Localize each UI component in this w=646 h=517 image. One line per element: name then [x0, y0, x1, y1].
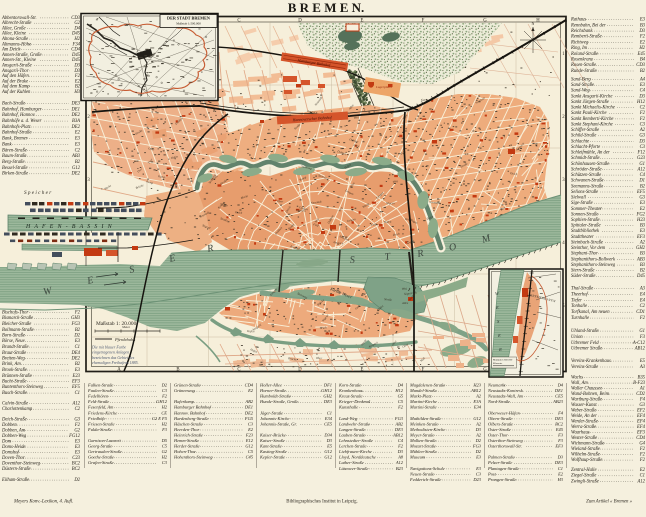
- svg-text:Schröder-Straße: Schröder-Straße: [571, 167, 602, 172]
- svg-text:E3: E3: [74, 137, 81, 142]
- svg-text:F23: F23: [245, 433, 254, 438]
- svg-text:A12: A12: [395, 460, 404, 465]
- svg-text:C3: C3: [248, 421, 254, 426]
- svg-text:C2: C2: [75, 148, 81, 153]
- svg-text:Baum-Straße: Baum-Straße: [2, 154, 27, 159]
- svg-text:D4: D4: [557, 383, 564, 388]
- svg-text:Kepler-Straße: Kepler-Straße: [259, 455, 285, 460]
- svg-text:Pelzer-Straße: Pelzer-Straße: [487, 460, 512, 465]
- svg-text:F3: F3: [639, 335, 646, 340]
- svg-text:E3A: E3A: [472, 399, 481, 404]
- svg-text:G12: G12: [324, 449, 332, 454]
- svg-text:Lehnstedter-Straße: Lehnstedter-Straße: [338, 438, 373, 443]
- svg-text:Vereins-Krankenhaus: Vereins-Krankenhaus: [571, 359, 611, 364]
- svg-text:D5: D5: [161, 438, 168, 443]
- svg-text:Allee, Große: Allee, Große: [1, 26, 26, 31]
- svg-text:G23: G23: [637, 156, 646, 161]
- svg-text:BC2: BC2: [72, 467, 81, 472]
- svg-text:G: G: [483, 367, 487, 372]
- svg-text:D23: D23: [472, 477, 481, 482]
- svg-text:Heinrich-Straße: Heinrich-Straße: [173, 433, 203, 438]
- svg-text:Grünenweg: Grünenweg: [174, 388, 195, 393]
- svg-text:Calvin-Straße: Calvin-Straße: [2, 402, 28, 407]
- svg-text:EF2: EF2: [636, 409, 646, 414]
- svg-text:E3: E3: [639, 229, 646, 234]
- svg-text:DE2: DE2: [244, 410, 254, 415]
- svg-text:C3: C3: [162, 460, 168, 465]
- svg-text:D45: D45: [636, 274, 646, 279]
- svg-text:AB2: AB2: [394, 421, 403, 426]
- svg-text:A3: A3: [639, 287, 646, 292]
- svg-text:E: E: [497, 333, 501, 338]
- svg-text:Stern-Straße: Stern-Straße: [571, 269, 594, 274]
- svg-text:CE5: CE5: [324, 421, 333, 426]
- svg-text:B-F23: B-F23: [633, 381, 646, 386]
- svg-text:Brook-Straße: Brook-Straße: [2, 368, 27, 373]
- svg-text:E: E: [361, 18, 364, 23]
- svg-text:H12: H12: [394, 388, 403, 393]
- svg-text:E2: E2: [639, 468, 646, 473]
- svg-text:E34: E34: [473, 405, 482, 410]
- svg-text:Rathaus: Rathaus: [570, 18, 586, 23]
- svg-text:Mathilden-Straße: Mathilden-Straße: [409, 416, 441, 421]
- svg-text:Sommer-Theater: Sommer-Theater: [571, 207, 602, 212]
- svg-text:Hafen: Hafen: [383, 220, 392, 224]
- svg-text:Wachs: Wachs: [571, 376, 583, 381]
- svg-text:Breiten-Weg: Breiten-Weg: [2, 357, 26, 362]
- svg-text:Hardenberg-Straße: Hardenberg-Straße: [173, 416, 208, 421]
- svg-text:Brünnen-Straße: Brünnen-Straße: [2, 374, 32, 379]
- svg-text:D45: D45: [71, 32, 81, 37]
- svg-text:CD3: CD3: [71, 16, 80, 21]
- svg-text:Garnison-Lazarett: Garnison-Lazarett: [88, 438, 122, 443]
- svg-text:Martini-Kirche: Martini-Kirche: [409, 399, 437, 404]
- svg-text:A2: A2: [475, 421, 482, 426]
- svg-text:A-C12: A-C12: [632, 341, 646, 346]
- svg-text:EF5: EF5: [71, 385, 81, 390]
- svg-text:Korn-Straße: Korn-Straße: [338, 383, 361, 388]
- svg-text:B2: B2: [75, 85, 81, 90]
- svg-text:F2: F2: [397, 405, 404, 410]
- svg-text:Neumarkt: Neumarkt: [487, 383, 506, 388]
- svg-text:Remberti-Straße: Remberti-Straße: [570, 35, 602, 40]
- svg-text:Tiefer: Tiefer: [571, 298, 582, 303]
- svg-text:H3: H3: [557, 477, 564, 482]
- svg-text:D3: D3: [638, 94, 645, 99]
- svg-text:Jäger-Straße: Jäger-Straße: [260, 410, 283, 415]
- svg-text:A2: A2: [639, 128, 646, 133]
- svg-text:ehemaligen Freihafens 1885.: ehemaligen Freihafens 1885.: [92, 360, 139, 365]
- svg-text:FG3: FG3: [394, 416, 404, 421]
- svg-text:Bollmann-Straße: Bollmann-Straße: [2, 328, 34, 333]
- svg-text:Ring, Im: Ring, Im: [570, 46, 588, 51]
- svg-text:B3: B3: [640, 252, 646, 257]
- svg-text:E3: E3: [74, 142, 81, 147]
- svg-text:EF3: EF3: [636, 431, 646, 436]
- svg-text:Braut-Straße: Braut-Straße: [2, 351, 26, 356]
- svg-text:AB23: AB23: [552, 399, 564, 404]
- svg-text:Sankt Michaelis-Kirche: Sankt Michaelis-Kirche: [571, 106, 615, 111]
- svg-text:A2: A2: [639, 241, 646, 246]
- svg-text:Albrecht-Straße: Albrecht-Straße: [1, 21, 31, 26]
- svg-text:G: G: [483, 18, 487, 23]
- svg-text:Pferdebahn: Pferdebahn: [114, 337, 136, 342]
- svg-text:FG12: FG12: [68, 434, 81, 439]
- svg-text:D3: D3: [475, 427, 482, 432]
- svg-text:F12: F12: [637, 151, 646, 156]
- svg-text:Stadtbibliothek: Stadtbibliothek: [571, 229, 600, 234]
- svg-text:G1: G1: [639, 329, 645, 334]
- svg-text:Am Deich: Am Deich: [1, 48, 21, 53]
- svg-text:E3: E3: [74, 445, 81, 450]
- svg-text:G1: G1: [639, 162, 645, 167]
- svg-text:G12: G12: [473, 416, 481, 421]
- svg-text:DE3: DE3: [323, 399, 333, 404]
- svg-text:D3: D3: [326, 438, 333, 443]
- svg-text:Wasser-Kunst: Wasser-Kunst: [571, 403, 597, 408]
- svg-text:Haferkamp: Haferkamp: [173, 399, 195, 404]
- svg-text:A12: A12: [637, 479, 646, 484]
- svg-text:E5: E5: [639, 359, 646, 364]
- svg-text:Birken-Straße: Birken-Straße: [2, 172, 28, 177]
- svg-text:Selions-Straße: Selions-Straße: [571, 190, 598, 195]
- svg-text:Auf der Kuhlen: Auf der Kuhlen: [1, 90, 31, 95]
- svg-text:A8: A8: [397, 455, 404, 460]
- svg-text:G2: G2: [74, 429, 80, 434]
- svg-text:Wolfhaup-Straße: Wolfhaup-Straße: [571, 458, 602, 463]
- svg-text:H23: H23: [472, 383, 481, 388]
- svg-text:Lerchen-Straße: Lerchen-Straße: [338, 444, 366, 449]
- svg-text:Kamp: Kamp: [420, 97, 429, 102]
- svg-text:N: N: [532, 21, 535, 26]
- svg-text:Schlachte: Schlachte: [571, 139, 589, 144]
- svg-text:Turnhalle: Turnhalle: [571, 316, 589, 321]
- svg-text:Düstern-Straße: Düstern-Straße: [1, 467, 31, 472]
- svg-text:A12: A12: [72, 402, 81, 407]
- svg-text:CE: CE: [161, 410, 167, 415]
- svg-text:E45: E45: [637, 52, 646, 57]
- svg-text:F34: F34: [72, 42, 81, 47]
- svg-text:Markt-Platz: Markt-Platz: [409, 394, 432, 399]
- svg-text:Schiffer-Straße: Schiffer-Straße: [571, 128, 599, 133]
- svg-text:Oster-Straße: Oster-Straße: [488, 427, 511, 432]
- svg-text:BC2: BC2: [555, 421, 564, 426]
- svg-text:Horner-Straße: Horner-Straße: [259, 388, 286, 393]
- svg-text:Theerhof: Theerhof: [571, 292, 588, 297]
- svg-text:Landwehr-Straße: Landwehr-Straße: [338, 421, 370, 426]
- svg-text:Sand-Straße: Sand-Straße: [571, 83, 594, 88]
- svg-text:Oberweser-Häfen: Oberweser-Häfen: [488, 410, 520, 415]
- svg-text:AB3: AB3: [636, 257, 646, 262]
- svg-text:B3: B3: [640, 224, 646, 229]
- svg-text:Maßstab 1: 20.000: Maßstab 1: 20.000: [96, 320, 137, 327]
- svg-text:FG2: FG2: [635, 212, 645, 217]
- svg-text:Magdalenen-Straße: Magdalenen-Straße: [409, 383, 445, 388]
- svg-text:Sankt Ansgarii-Kirche: Sankt Ansgarii-Kirche: [571, 94, 612, 99]
- svg-text:Rennbahn, Bei der: Rennbahn, Bei der: [570, 23, 606, 28]
- svg-text:Stadttheater: Stadttheater: [571, 235, 594, 240]
- svg-text:Krankenhaus: Krankenhaus: [338, 388, 363, 393]
- svg-text:Bessel-Straße: Bessel-Straße: [2, 166, 28, 171]
- svg-text:Rosenkranz: Rosenkranz: [570, 58, 593, 63]
- svg-text:Doms-Heide: Doms-Heide: [1, 445, 25, 450]
- svg-text:Lützower-Straße: Lützower-Straße: [338, 466, 369, 471]
- svg-text:Waller Chaussee: Waller Chaussee: [571, 387, 602, 392]
- svg-text:Tonhalle: Tonhalle: [571, 304, 587, 309]
- svg-text:EF3: EF3: [554, 444, 563, 449]
- svg-text:Meyer-Straße: Meyer-Straße: [409, 433, 434, 438]
- svg-text:AB12: AB12: [470, 388, 482, 393]
- svg-text:DE3: DE3: [70, 102, 80, 107]
- svg-text:D3: D3: [73, 64, 80, 69]
- svg-text:G12: G12: [324, 455, 332, 460]
- svg-text:F2: F2: [639, 458, 646, 463]
- svg-text:Sankt Pauli-Kirche: Sankt Pauli-Kirche: [571, 111, 607, 116]
- svg-text:Dobben-Weg: Dobben-Weg: [1, 434, 27, 439]
- svg-text:FG3: FG3: [472, 444, 482, 449]
- svg-text:Methodisten-Kirche: Methodisten-Kirche: [409, 427, 445, 432]
- svg-text:Sankt Remberti-Kirche: Sankt Remberti-Kirche: [571, 117, 613, 122]
- svg-text:A1: A1: [639, 387, 645, 392]
- svg-text:Oster-Thor: Oster-Thor: [488, 433, 508, 438]
- svg-text:G3: G3: [74, 418, 80, 423]
- svg-text:Martini-Straße: Martini-Straße: [409, 405, 437, 410]
- svg-text:Plantagen-Straße: Plantagen-Straße: [487, 466, 519, 471]
- svg-text:E2: E2: [74, 131, 81, 136]
- svg-text:F2: F2: [74, 423, 81, 428]
- svg-text:H2: H2: [161, 405, 168, 410]
- svg-text:Kreuz-Straße: Kreuz-Straße: [338, 394, 363, 399]
- svg-text:Dobben, Am: Dobben, Am: [1, 429, 26, 434]
- svg-text:G3: G3: [639, 196, 645, 201]
- svg-text:E2: E2: [639, 207, 646, 212]
- svg-text:Bahnhof, Hamburger: Bahnhof, Hamburger: [2, 107, 42, 112]
- svg-text:Post: Post: [487, 471, 497, 476]
- svg-text:E3: E3: [639, 18, 646, 23]
- svg-text:Wieland-Straße: Wieland-Straße: [571, 447, 600, 452]
- svg-text:E5: E5: [326, 444, 333, 449]
- svg-text:E3: E3: [74, 368, 81, 373]
- svg-text:H12: H12: [636, 100, 646, 105]
- svg-text:Kaiser-Brücke: Kaiser-Brücke: [259, 433, 286, 438]
- svg-text:Brandt-Straße: Brandt-Straße: [2, 345, 29, 350]
- svg-text:Torfkanal, Am neuen: Torfkanal, Am neuen: [571, 310, 610, 315]
- svg-text:Schleifmühle, An der: Schleifmühle, An der: [571, 151, 610, 156]
- svg-text:B R E M E N.: B R E M E N.: [288, 0, 365, 15]
- svg-text:Grünen-Straße: Grünen-Straße: [174, 383, 201, 388]
- svg-text:Bismarck-Straße: Bismarck-Straße: [2, 316, 33, 321]
- svg-text:Sophien-Straße: Sophien-Straße: [571, 218, 600, 223]
- svg-text:Kunsthalle: Kunsthalle: [338, 405, 358, 410]
- svg-text:Rosen-Straße: Rosen-Straße: [570, 63, 596, 68]
- svg-text:H2: H2: [638, 46, 645, 51]
- svg-text:E23: E23: [72, 374, 81, 379]
- svg-text:Meyers Konv.-Lexikon, 4. Aufl.: Meyers Konv.-Lexikon, 4. Aufl.: [13, 500, 73, 505]
- svg-text:Krieger-Denkmal: Krieger-Denkmal: [338, 399, 371, 404]
- svg-text:Land-Weg: Land-Weg: [338, 416, 358, 421]
- svg-text:Bank: Bank: [2, 142, 12, 147]
- svg-text:Kant-Straße: Kant-Straße: [259, 444, 282, 449]
- svg-text:D4: D4: [397, 383, 404, 388]
- svg-text:Häschen-Straße: Häschen-Straße: [173, 421, 203, 426]
- svg-text:Wand-Bohnen, Beim: Wand-Bohnen, Beim: [571, 392, 610, 397]
- svg-text:EF3: EF3: [71, 380, 81, 385]
- svg-text:D3: D3: [638, 139, 645, 144]
- svg-text:G2: G2: [162, 449, 168, 454]
- svg-text:Navigations-Schule: Navigations-Schule: [409, 466, 445, 471]
- svg-text:E2: E2: [247, 427, 254, 432]
- svg-text:B2: B2: [75, 160, 81, 165]
- svg-text:E12: E12: [245, 438, 254, 443]
- svg-text:Schlacht-Pforte: Schlacht-Pforte: [571, 145, 600, 150]
- svg-text:D3: D3: [557, 455, 564, 460]
- svg-text:Olbers-Straße: Olbers-Straße: [488, 421, 513, 426]
- svg-text:Meinken-Straße: Meinken-Straße: [409, 421, 438, 426]
- svg-text:Altona-Straße: Altona-Straße: [1, 37, 28, 42]
- svg-text:Sand-Weg: Sand-Weg: [571, 89, 590, 94]
- svg-text:Steinbach-Straße: Steinbach-Straße: [571, 241, 603, 246]
- svg-text:Feld-Straße: Feld-Straße: [87, 399, 109, 404]
- svg-text:Born-Straße: Born-Straße: [2, 334, 25, 339]
- svg-text:Doventhor-Steinweg: Doventhor-Steinweg: [1, 462, 41, 467]
- svg-text:C23: C23: [72, 456, 80, 461]
- svg-text:G5: G5: [398, 394, 404, 399]
- svg-text:H A F E N - B A S S I N: H A F E N - B A S S I N: [25, 224, 113, 230]
- svg-text:Museum: Museum: [409, 455, 426, 460]
- svg-text:Schützen-Straße: Schützen-Straße: [571, 173, 601, 178]
- svg-text:F2: F2: [74, 311, 81, 316]
- svg-text:G3: G3: [639, 134, 645, 139]
- svg-text:Ober: Ober: [316, 356, 323, 360]
- svg-text:Wartburg-Straße: Wartburg-Straße: [571, 398, 602, 403]
- svg-text:Falken-Straße: Falken-Straße: [87, 383, 113, 388]
- svg-text:Heerden-Thor: Heerden-Thor: [173, 427, 199, 432]
- svg-text:Hannov. Bahnhof: Hannov. Bahnhof: [173, 410, 206, 415]
- svg-text:Mühlen-Straße: Mühlen-Straße: [409, 449, 437, 454]
- svg-text:Holler-Allee: Holler-Allee: [259, 383, 282, 388]
- svg-text:AB3: AB3: [71, 154, 81, 159]
- svg-text:C1: C1: [75, 345, 80, 350]
- svg-text:Neuen-Straße: Neuen-Straße: [409, 471, 434, 476]
- svg-text:G3: G3: [639, 403, 645, 408]
- svg-text:AB2: AB2: [244, 399, 253, 404]
- svg-text:F: F: [422, 18, 425, 23]
- svg-text:Bibliographisches Institut in: Bibliographisches Institut in Leipzig.: [286, 500, 357, 505]
- svg-text:Bach-Straße: Bach-Straße: [2, 102, 25, 107]
- svg-text:GH12: GH12: [321, 388, 333, 393]
- svg-text:C3: C3: [476, 471, 482, 476]
- svg-text:CD3: CD3: [636, 63, 645, 68]
- svg-text:B3: B3: [640, 23, 646, 28]
- svg-text:D: D: [298, 18, 302, 23]
- svg-text:Allee, Kleine: Allee, Kleine: [1, 32, 26, 37]
- svg-text:A: A: [117, 367, 121, 372]
- svg-text:Georg-Straße: Georg-Straße: [88, 444, 112, 449]
- svg-text:E3: E3: [74, 339, 81, 344]
- svg-text:Fulda-Straße: Fulda-Straße: [87, 427, 112, 432]
- svg-text:Sögestr: Sögestr: [386, 201, 396, 205]
- svg-text:Sonnen-Straße: Sonnen-Straße: [571, 212, 598, 217]
- svg-text:B2: B2: [75, 362, 81, 367]
- svg-text:E: E: [361, 367, 364, 372]
- svg-text:C: C: [237, 367, 240, 372]
- svg-text:E34: E34: [324, 416, 333, 421]
- svg-text:Fedelhören: Fedelhören: [87, 394, 109, 399]
- svg-text:C4: C4: [640, 89, 646, 94]
- svg-text:Wichmann-Straße: Wichmann-Straße: [571, 442, 604, 447]
- svg-text:E3: E3: [74, 440, 81, 445]
- svg-text:Thal-Straße: Thal-Straße: [571, 287, 593, 292]
- svg-text:D1: D1: [638, 179, 645, 184]
- svg-text:F2: F2: [639, 35, 646, 40]
- svg-text:Dobben: Dobben: [1, 423, 17, 428]
- svg-text:C: C: [237, 18, 240, 23]
- svg-text:Osterthor-Steinweg: Osterthor-Steinweg: [488, 438, 523, 443]
- svg-text:Schild-Straße: Schild-Straße: [571, 134, 596, 139]
- svg-text:Roland-Straße: Roland-Straße: [570, 52, 598, 57]
- svg-text:B2: B2: [640, 269, 646, 274]
- svg-text:Bahnhof-Straße: Bahnhof-Straße: [2, 131, 31, 136]
- svg-text:Bischofs-Thor: Bischofs-Thor: [2, 311, 28, 316]
- svg-text:Richtweg: Richtweg: [570, 40, 589, 45]
- svg-text:A2: A2: [475, 394, 482, 399]
- svg-text:Stephanithors-Steinweg: Stephanithors-Steinweg: [571, 263, 616, 268]
- svg-text:GH2: GH2: [323, 394, 332, 399]
- svg-text:Lauben-Straße: Lauben-Straße: [338, 433, 365, 438]
- svg-text:H: H: [536, 18, 540, 23]
- svg-text:F4: F4: [557, 410, 564, 415]
- svg-text:Union: Union: [571, 335, 583, 340]
- svg-text:C45: C45: [246, 455, 254, 460]
- svg-text:CD1: CD1: [636, 310, 645, 315]
- svg-text:R: R: [498, 347, 502, 352]
- svg-text:EF4: EF4: [636, 425, 646, 430]
- svg-text:Altmanns-Höhe: Altmanns-Höhe: [1, 42, 31, 47]
- svg-text:E3: E3: [74, 451, 81, 456]
- svg-text:Prangen-Straße: Prangen-Straße: [487, 477, 516, 482]
- svg-text:Auf den Häfen: Auf den Häfen: [1, 74, 29, 79]
- svg-text:EF3: EF3: [636, 235, 646, 240]
- svg-text:A4: A4: [639, 78, 646, 83]
- svg-text:GH12: GH12: [156, 399, 168, 404]
- svg-text:H2: H2: [161, 455, 168, 460]
- svg-text:Neustadts-Kontresk.: Neustadts-Kontresk.: [487, 388, 524, 393]
- svg-text:Schwanen-Straße: Schwanen-Straße: [571, 179, 603, 184]
- svg-text:AB12: AB12: [392, 433, 404, 438]
- svg-text:G12: G12: [245, 444, 253, 449]
- svg-text:DE1: DE1: [244, 405, 253, 410]
- svg-text:Wilhelm-Straße: Wilhelm-Straße: [571, 453, 600, 458]
- svg-text:Mandel-Straße: Mandel-Straße: [409, 388, 437, 393]
- svg-text:C1: C1: [640, 474, 645, 479]
- svg-text:Ziegel-Straße: Ziegel-Straße: [571, 474, 596, 479]
- svg-text:D4: D4: [73, 26, 80, 31]
- svg-text:Süder-Straße: Süder-Straße: [571, 274, 595, 279]
- svg-text:Berg-Straße: Berg-Straße: [2, 160, 25, 165]
- svg-text:Friesen-Straße: Friesen-Straße: [87, 421, 115, 426]
- svg-text:C2: C2: [640, 304, 646, 309]
- svg-text:Waarhaus: Waarhaus: [571, 431, 590, 436]
- svg-text:Deich-Straße: Deich-Straße: [1, 418, 27, 423]
- svg-text:D2: D2: [161, 383, 168, 388]
- svg-text:B3: B3: [640, 263, 646, 268]
- svg-text:DE3: DE3: [394, 427, 404, 432]
- svg-text:FG3: FG3: [70, 322, 80, 327]
- svg-text:Park: Park: [320, 325, 328, 330]
- svg-text:H23: H23: [636, 218, 646, 223]
- svg-text:C3: C3: [640, 123, 646, 128]
- svg-text:Doven-Thor: Doven-Thor: [1, 456, 25, 461]
